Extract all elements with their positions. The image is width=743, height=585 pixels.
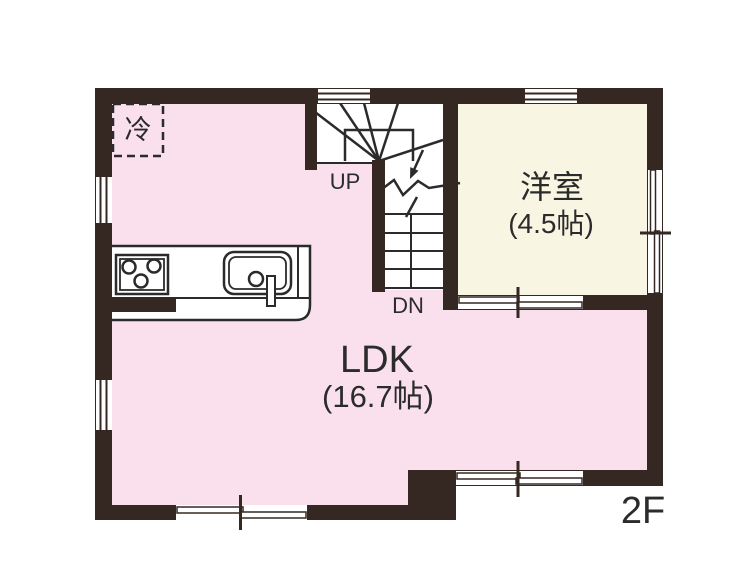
floor-label: 2F [621, 490, 665, 532]
ldk-room-size: (16.7帖) [322, 379, 434, 414]
floor-plan-2f: 冷 UP DN 洋室 (4.5帖) LDK (16.7帖) 2F [0, 0, 743, 585]
window-top-stairs [318, 89, 370, 103]
window-left-lower [96, 380, 112, 430]
western-room-size: (4.5帖) [508, 208, 594, 239]
stairs-up-label: UP [330, 169, 361, 194]
wall-stairs-spine [372, 160, 385, 292]
wall-top [95, 88, 663, 104]
faucet-icon [267, 276, 275, 306]
window-left-upper [96, 177, 112, 223]
stairs-down-label: DN [392, 293, 424, 318]
stove-icon [116, 255, 168, 294]
refrigerator-label: 冷 [125, 115, 152, 145]
wall-western-left [443, 88, 458, 310]
ldk-room-name: LDK [340, 339, 414, 381]
western-room-name: 洋室 [520, 169, 584, 205]
window-top-western [525, 89, 577, 103]
wall-stairs-left [305, 88, 317, 170]
wall-left [95, 88, 112, 520]
